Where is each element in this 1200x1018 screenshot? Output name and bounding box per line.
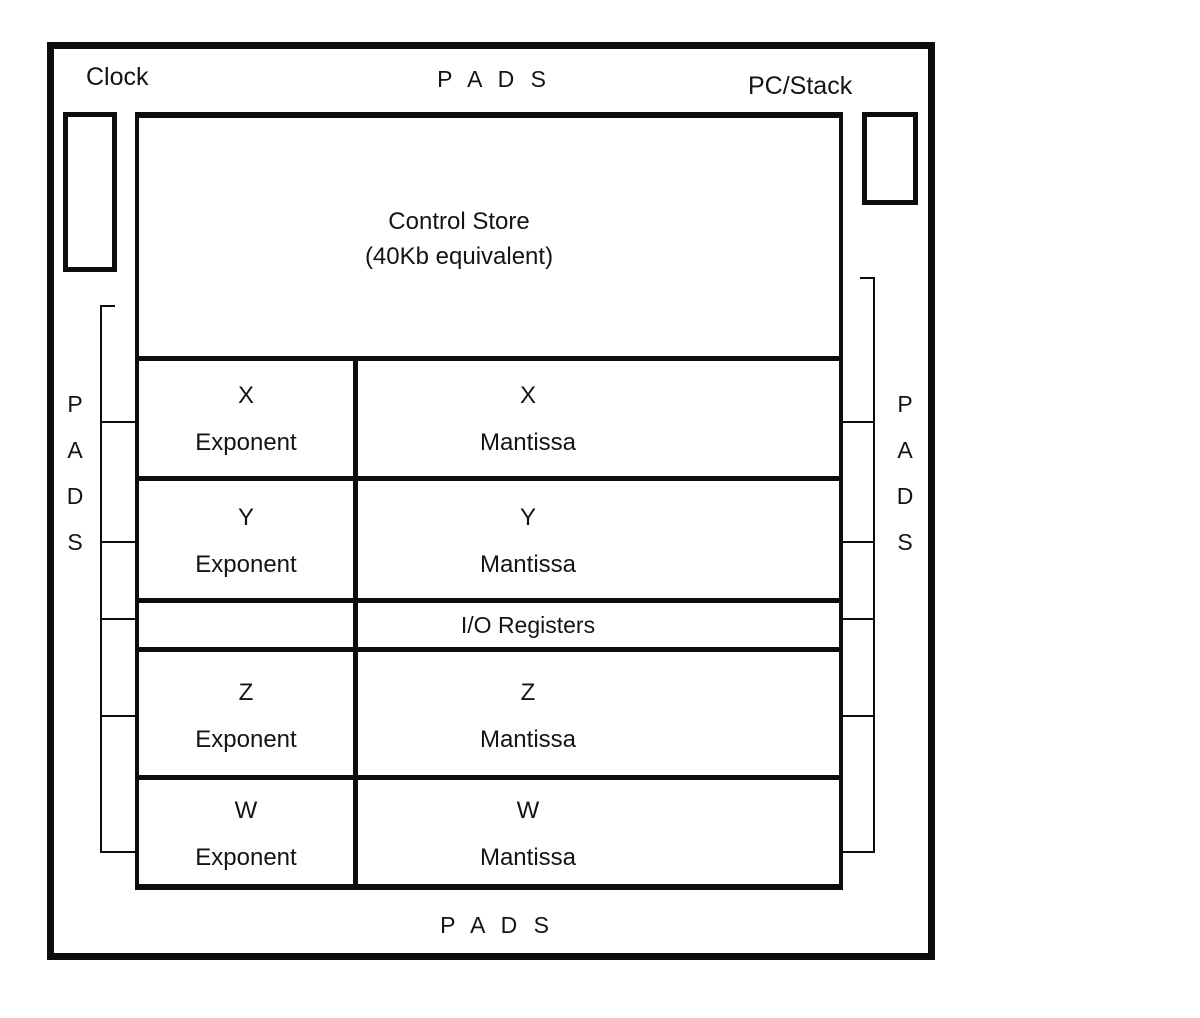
row-divider-top xyxy=(139,356,839,361)
pad-bus-tick xyxy=(100,715,135,717)
register-w-exponent: W Exponent xyxy=(139,787,353,881)
register-letter: Z xyxy=(139,669,353,716)
pad-bus-tick xyxy=(100,618,135,620)
pad-bus-tick xyxy=(840,715,875,717)
pad-bus-tick xyxy=(100,851,135,853)
row-divider-z-w xyxy=(139,775,839,780)
pads-letter: P xyxy=(63,381,87,427)
register-letter: Z xyxy=(358,669,698,716)
register-word: Exponent xyxy=(139,419,353,466)
pc-stack-label: PC/Stack xyxy=(748,72,852,101)
pad-bus-tick xyxy=(100,421,135,423)
pads-bottom-label: P A D S xyxy=(397,912,597,939)
register-z-exponent: Z Exponent xyxy=(139,669,353,763)
register-word: Exponent xyxy=(139,834,353,881)
register-x-exponent: X Exponent xyxy=(139,372,353,466)
io-registers-cell: I/O Registers xyxy=(358,603,698,647)
register-word: Exponent xyxy=(139,716,353,763)
pc-stack-pad-rect xyxy=(862,112,918,205)
pads-right-label: P A D S xyxy=(893,381,917,565)
register-word: Exponent xyxy=(139,541,353,588)
pads-left-label: P A D S xyxy=(63,381,87,565)
pads-letter: A xyxy=(893,427,917,473)
pads-letter: S xyxy=(63,519,87,565)
register-word: Mantissa xyxy=(358,716,698,763)
pad-bus-tick xyxy=(100,541,135,543)
right-pad-bracket-hook xyxy=(860,277,875,279)
clock-pad-rect xyxy=(63,112,117,272)
pads-letter: D xyxy=(63,473,87,519)
register-letter: X xyxy=(139,372,353,419)
chip-floorplan-diagram: Clock P A D S PC/Stack Control Store (40… xyxy=(0,0,1200,1018)
row-divider-x-y xyxy=(139,476,839,481)
pad-bus-tick xyxy=(840,851,875,853)
register-letter: X xyxy=(358,372,698,419)
pads-letter: A xyxy=(63,427,87,473)
register-word: Mantissa xyxy=(358,834,698,881)
control-store-subtitle: (40Kb equivalent) xyxy=(139,239,779,274)
pad-bus-tick xyxy=(840,618,875,620)
left-pad-bracket-line xyxy=(100,305,102,853)
pads-letter: D xyxy=(893,473,917,519)
pads-letter: P xyxy=(893,381,917,427)
left-pad-bracket-hook xyxy=(100,305,115,307)
register-y-exponent: Y Exponent xyxy=(139,494,353,588)
register-word: Mantissa xyxy=(358,419,698,466)
register-w-mantissa: W Mantissa xyxy=(358,787,698,881)
register-letter: W xyxy=(358,787,698,834)
register-y-mantissa: Y Mantissa xyxy=(358,494,698,588)
clock-label: Clock xyxy=(86,63,149,92)
register-word: Mantissa xyxy=(358,541,698,588)
pads-letter: S xyxy=(893,519,917,565)
control-store-region: Control Store (40Kb equivalent) xyxy=(139,204,779,274)
pads-top-label: P A D S xyxy=(394,66,594,93)
row-divider-io-z xyxy=(139,647,839,652)
register-letter: Y xyxy=(358,494,698,541)
register-letter: W xyxy=(139,787,353,834)
register-letter: Y xyxy=(139,494,353,541)
core-block: Control Store (40Kb equivalent) X Expone… xyxy=(135,112,843,890)
pad-bus-tick xyxy=(840,421,875,423)
pad-bus-tick xyxy=(840,541,875,543)
control-store-title: Control Store xyxy=(139,204,779,239)
register-x-mantissa: X Mantissa xyxy=(358,372,698,466)
right-pad-bracket-line xyxy=(873,277,875,853)
register-z-mantissa: Z Mantissa xyxy=(358,669,698,763)
